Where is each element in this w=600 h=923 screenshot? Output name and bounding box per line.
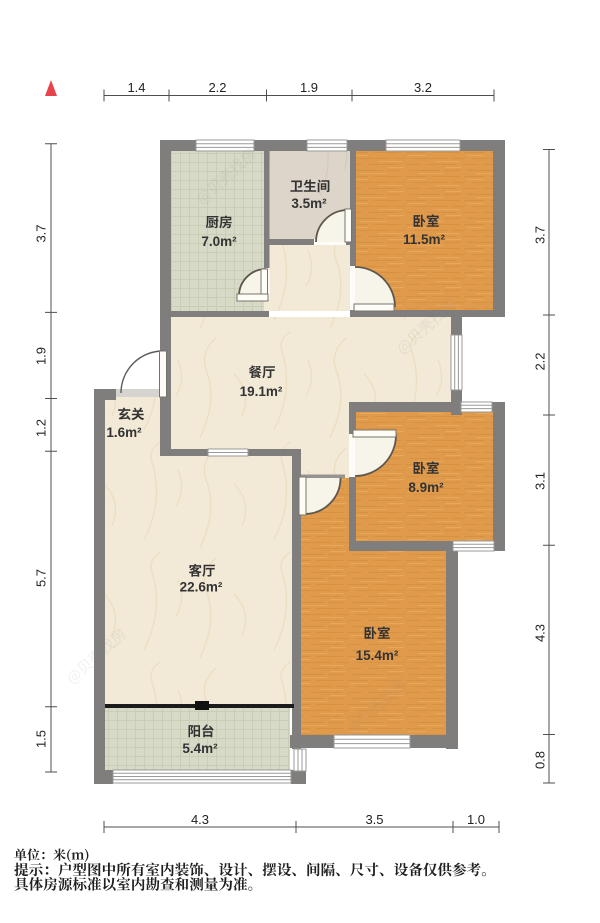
svg-text:1.0: 1.0	[467, 812, 485, 827]
svg-text:1.6m²: 1.6m²	[106, 425, 142, 440]
svg-text:3.5m²: 3.5m²	[291, 196, 327, 211]
svg-text:1.5: 1.5	[34, 730, 49, 748]
svg-text:3.2: 3.2	[414, 80, 432, 95]
svg-text:7.0m²: 7.0m²	[201, 234, 237, 249]
svg-text:5.4m²: 5.4m²	[182, 741, 218, 756]
svg-text:19.1m²: 19.1m²	[240, 384, 283, 399]
svg-text:4.3: 4.3	[533, 624, 548, 642]
svg-text:5.7: 5.7	[34, 569, 49, 587]
svg-text:3.5: 3.5	[365, 812, 383, 827]
svg-text:2.2: 2.2	[533, 352, 548, 370]
svg-text:1.9: 1.9	[300, 80, 318, 95]
svg-text:3.7: 3.7	[533, 226, 548, 244]
svg-text:1.4: 1.4	[127, 80, 145, 95]
svg-text:0.8: 0.8	[533, 751, 548, 769]
svg-text:8.9m²: 8.9m²	[408, 480, 444, 495]
svg-text:1.2: 1.2	[34, 419, 49, 437]
svg-text:22.6m²: 22.6m²	[180, 580, 223, 595]
svg-text:2.2: 2.2	[208, 80, 226, 95]
svg-text:11.5m²: 11.5m²	[403, 232, 446, 247]
svg-text:3.7: 3.7	[34, 224, 49, 242]
svg-text:1.9: 1.9	[34, 347, 49, 365]
svg-text:15.4m²: 15.4m²	[356, 648, 399, 663]
svg-text:4.3: 4.3	[191, 812, 209, 827]
svg-text:3.1: 3.1	[533, 472, 548, 490]
